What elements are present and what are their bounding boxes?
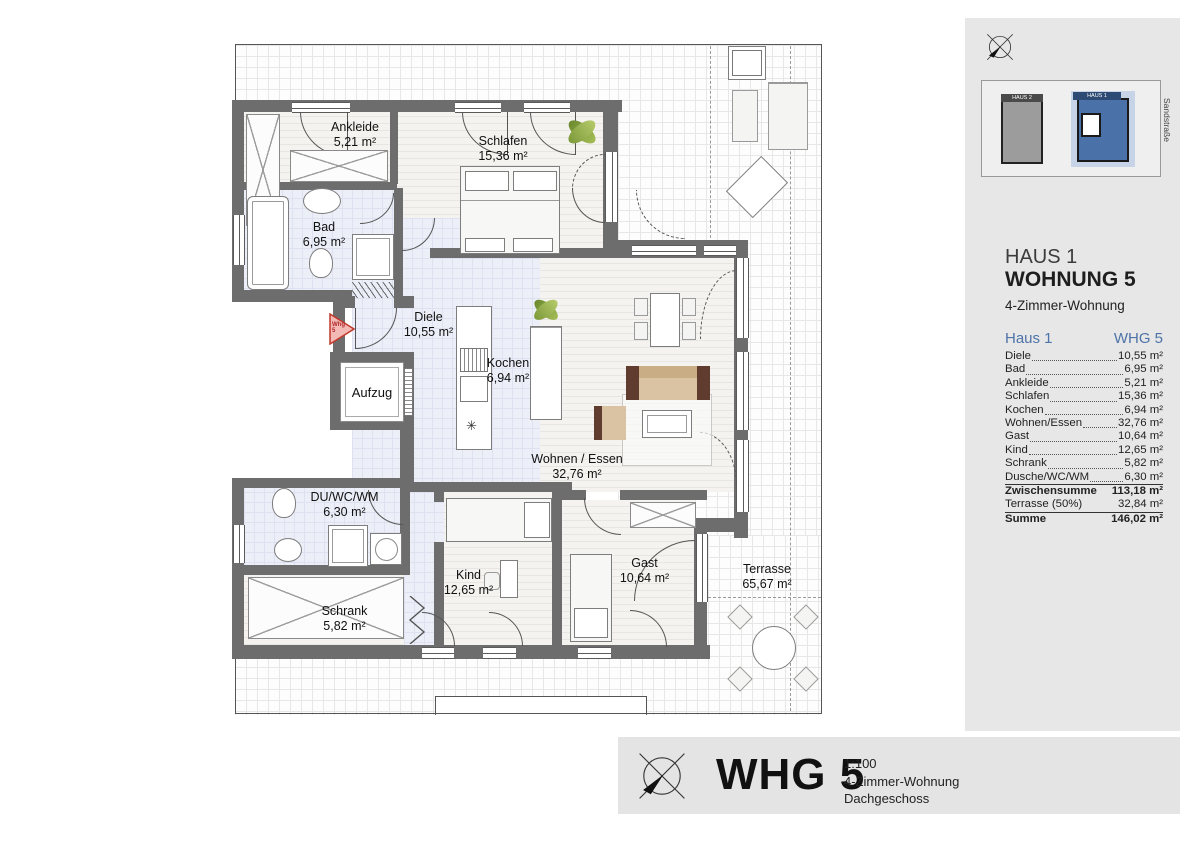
window	[696, 534, 708, 602]
row-value: 32,84 m²	[1118, 498, 1163, 511]
row-label: Ankleide	[1005, 377, 1049, 390]
leader-dots	[1032, 360, 1117, 361]
room-label-schrank: Schrank 5,82 m²	[292, 604, 397, 634]
table-row: Kochen6,94 m²	[1005, 404, 1163, 417]
leader-dots	[1030, 441, 1117, 442]
table-row: Gast10,64 m²	[1005, 430, 1163, 443]
table-total-row: Summe146,02 m²	[1005, 513, 1163, 526]
window	[422, 647, 454, 659]
leader-dots	[1050, 401, 1117, 402]
titleblock-type: 4-Zimmer-Wohnung	[844, 773, 959, 791]
table-row: Schrank5,82 m²	[1005, 457, 1163, 470]
terrace-door-window	[736, 352, 749, 430]
row-value: 5,21 m²	[1124, 377, 1163, 390]
row-value: 15,36 m²	[1118, 390, 1163, 403]
room-area: 12,65 m²	[416, 583, 521, 598]
room-name: Bad	[284, 220, 364, 235]
table-header-whg: WHG 5	[1114, 330, 1163, 347]
wall	[434, 492, 444, 502]
site-minimap: HAUS 2 HAUS 1	[981, 80, 1161, 177]
roof-outline	[235, 44, 790, 45]
stairs-hatch	[352, 282, 398, 298]
sofa-arm	[697, 366, 710, 400]
washing-machine	[370, 533, 402, 565]
sofa-arm	[626, 366, 639, 400]
room-name: Kochen	[476, 356, 540, 371]
wall	[552, 492, 562, 648]
wall	[620, 490, 707, 500]
window	[483, 647, 516, 659]
minimap-haus2	[1001, 94, 1043, 164]
window	[233, 215, 245, 265]
roof-outline	[235, 713, 822, 714]
bed-bench	[513, 238, 553, 252]
row-value: 113,18 m²	[1112, 485, 1163, 498]
row-label: Diele	[1005, 350, 1031, 363]
floor-symbol: ✳	[466, 418, 477, 434]
row-value: 6,30 m²	[1124, 471, 1163, 484]
minimap-haus1-label: HAUS 1	[1073, 92, 1121, 100]
pillow	[465, 171, 509, 191]
window	[233, 525, 245, 563]
row-label: Gast	[1005, 430, 1029, 443]
row-value: 10,55 m²	[1118, 350, 1163, 363]
floorplan-page: Aufzug	[0, 0, 1200, 849]
wall	[400, 430, 414, 482]
pillow	[524, 502, 550, 538]
roof-outline	[789, 44, 822, 45]
room-area: 15,36 m²	[448, 149, 558, 164]
room-area: 10,64 m²	[592, 571, 697, 586]
minimap-haus1-court	[1081, 113, 1101, 137]
chair	[634, 298, 648, 316]
wall	[232, 478, 244, 658]
row-value: 5,82 m²	[1124, 457, 1163, 470]
room-name: Terrasse	[712, 562, 822, 577]
roof-outline	[235, 44, 236, 102]
sidebar-subtitle: 4-Zimmer-Wohnung	[1005, 298, 1125, 313]
wall	[232, 645, 710, 659]
row-label: Summe	[1005, 513, 1046, 526]
table-subtotal-row: Zwischensumme113,18 m²	[1005, 485, 1163, 498]
room-name: Diele	[386, 310, 471, 325]
plant	[566, 116, 598, 148]
room-area: 5,21 m²	[300, 135, 410, 150]
row-label: Bad	[1005, 363, 1025, 376]
window	[578, 647, 611, 659]
room-label-kind: Kind 12,65 m²	[416, 568, 521, 598]
table-row: Wohnen/Essen32,76 m²	[1005, 417, 1163, 430]
overhang-dashed-line	[710, 46, 711, 238]
row-label: Schlafen	[1005, 390, 1049, 403]
table-row: Ankleide5,21 m²	[1005, 377, 1163, 390]
window	[632, 245, 696, 256]
armchair	[594, 406, 626, 440]
leader-dots	[1090, 481, 1123, 482]
row-label: Zwischensumme	[1005, 485, 1097, 498]
pillow	[574, 608, 608, 638]
chair	[634, 322, 648, 340]
plant	[532, 296, 560, 324]
row-value: 12,65 m²	[1118, 444, 1163, 457]
leader-dots	[1026, 374, 1123, 375]
pillow	[513, 171, 557, 191]
room-area: 65,67 m²	[712, 577, 822, 592]
north-arrow-icon	[634, 748, 690, 804]
folding-door	[408, 596, 428, 644]
coffee-table	[642, 410, 692, 438]
toilet	[309, 248, 333, 278]
sidebar-apartment-title: WOHNUNG 5	[1005, 268, 1136, 292]
elevator: Aufzug	[340, 362, 404, 422]
wall	[244, 565, 404, 575]
table-row: Kind12,65 m²	[1005, 444, 1163, 457]
table-row: Diele10,55 m²	[1005, 350, 1163, 363]
bathtub	[247, 196, 289, 290]
street-label: Sandstraße	[1162, 98, 1172, 142]
wardrobe	[630, 502, 696, 528]
room-name: Gast	[592, 556, 697, 571]
room-label-bad: Bad 6,95 m²	[284, 220, 364, 250]
window	[605, 152, 618, 222]
row-label: Dusche/WC/WM	[1005, 471, 1089, 484]
row-value: 6,95 m²	[1124, 363, 1163, 376]
sidebar-panel: HAUS 2 HAUS 1 Sandstraße HAUS 1 WOHNUNG …	[965, 18, 1180, 731]
room-label-kochen: Kochen 6,94 m²	[476, 356, 540, 386]
wall	[232, 100, 244, 302]
wall	[244, 478, 414, 488]
table-row: Schlafen15,36 m²	[1005, 390, 1163, 403]
titleblock-scale: 1:100	[844, 755, 959, 773]
window	[704, 245, 736, 256]
leader-dots	[1045, 414, 1124, 415]
room-name: Wohnen / Essen	[512, 452, 642, 467]
area-table: Haus 1 WHG 5 Diele10,55 m² Bad6,95 m² An…	[1005, 330, 1163, 526]
chair	[682, 322, 696, 340]
room-name: Schlafen	[448, 134, 558, 149]
elevator-door	[404, 368, 413, 416]
room-name: DU/WC/WM	[292, 490, 397, 505]
room-label-schlafen: Schlafen 15,36 m²	[448, 134, 558, 164]
titleblock-title: WHG 5	[716, 750, 865, 800]
room-name: Kind	[416, 568, 521, 583]
room-area: 10,55 m²	[386, 325, 471, 340]
dining-table	[650, 293, 680, 347]
room-area: 5,82 m²	[292, 619, 397, 634]
row-label: Schrank	[1005, 457, 1047, 470]
table-row: Dusche/WC/WM6,30 m²	[1005, 471, 1163, 485]
wall	[404, 482, 572, 492]
room-name: Ankleide	[300, 120, 410, 135]
room-label-duwcwm: DU/WC/WM 6,30 m²	[292, 490, 397, 520]
roof-outline	[821, 44, 822, 714]
shower	[328, 525, 368, 567]
washer-drum	[375, 538, 398, 561]
side-table	[732, 90, 758, 142]
room-label-terrasse: Terrasse 65,67 m²	[712, 562, 822, 592]
sink	[274, 538, 302, 562]
leader-dots	[1048, 468, 1124, 469]
blanket-line	[461, 200, 559, 201]
terrace-door-window	[736, 258, 749, 338]
skylight-box	[728, 46, 766, 80]
room-label-ankleide: Ankleide 5,21 m²	[300, 120, 410, 150]
table-header-house: Haus 1	[1005, 330, 1053, 347]
sidebar-house-title: HAUS 1	[1005, 246, 1077, 269]
chair	[682, 298, 696, 316]
room-label-wohnen: Wohnen / Essen 32,76 m²	[512, 452, 642, 482]
marker-line2: 5	[332, 328, 335, 334]
floor-plan: Aufzug	[0, 0, 965, 735]
row-label: Kind	[1005, 444, 1028, 457]
terrace-door-window	[736, 440, 749, 512]
leader-dots	[1050, 387, 1124, 388]
room-area: 6,94 m²	[476, 371, 540, 386]
lounge-chair	[768, 82, 808, 150]
row-value: 146,02 m²	[1111, 513, 1163, 526]
overhang-dashed-line	[708, 597, 821, 598]
room-area: 6,95 m²	[284, 235, 364, 250]
room-area: 32,76 m²	[512, 467, 642, 482]
leader-dots	[1029, 454, 1117, 455]
room-label-gast: Gast 10,64 m²	[592, 556, 697, 586]
row-label: Terrasse (50%)	[1005, 498, 1082, 511]
wall	[341, 296, 355, 308]
titleblock-floor: Dachgeschoss	[844, 790, 959, 808]
entrance-marker-text: Whg 5	[332, 322, 345, 335]
wall	[562, 490, 586, 500]
north-arrow-icon	[983, 30, 1017, 64]
row-value: 10,64 m²	[1118, 430, 1163, 443]
table-terrace-row: Terrasse (50%)32,84 m²	[1005, 498, 1163, 512]
sofa-seat	[639, 366, 697, 400]
room-label-diele: Diele 10,55 m²	[386, 310, 471, 340]
row-label: Wohnen/Essen	[1005, 417, 1082, 430]
elevator-label: Aufzug	[352, 385, 392, 400]
terrace-table	[752, 626, 796, 670]
marker-line1: Whg	[332, 322, 345, 328]
room-name: Schrank	[292, 604, 397, 619]
title-bar: WHG 5 1:100 4-Zimmer-Wohnung Dachgeschos…	[618, 737, 1180, 814]
wardrobe	[290, 150, 388, 182]
sofa	[626, 366, 710, 400]
row-label: Kochen	[1005, 404, 1044, 417]
minimap-haus2-label: HAUS 2	[1001, 94, 1043, 102]
table-row: Bad6,95 m²	[1005, 363, 1163, 376]
titleblock-info: 1:100 4-Zimmer-Wohnung Dachgeschoss	[844, 755, 959, 808]
leader-dots	[1083, 427, 1117, 428]
row-value: 6,94 m²	[1124, 404, 1163, 417]
bed-bench	[465, 238, 505, 252]
area-table-header: Haus 1 WHG 5	[1005, 330, 1163, 347]
room-area: 6,30 m²	[292, 505, 397, 520]
row-value: 32,76 m²	[1118, 417, 1163, 430]
sink	[303, 188, 341, 214]
